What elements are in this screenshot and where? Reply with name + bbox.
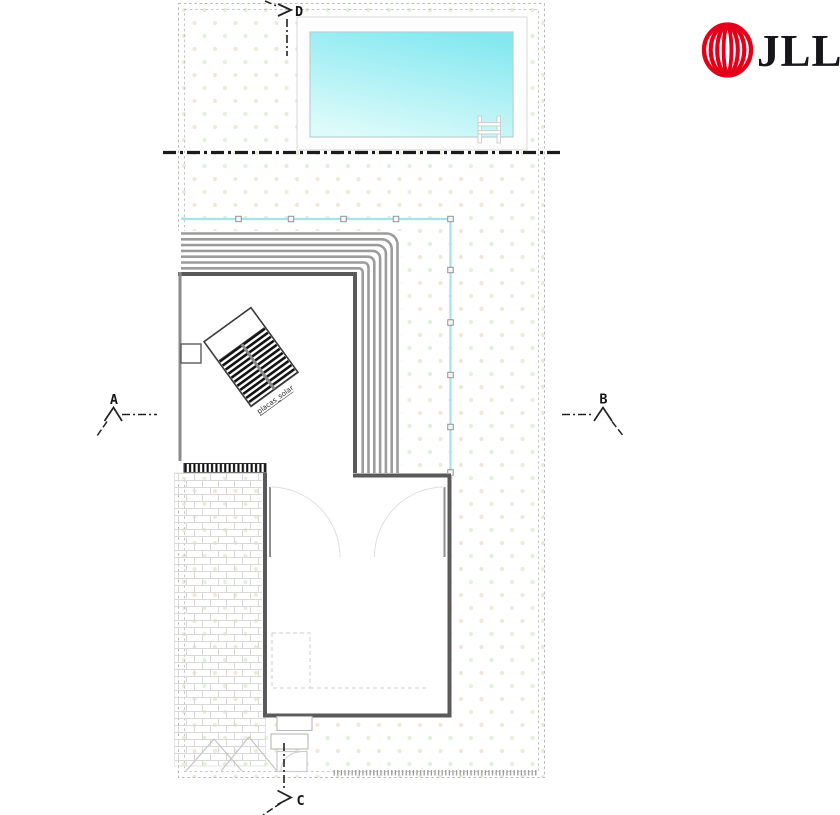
section-label-a: A — [110, 392, 118, 408]
lower-room — [262, 473, 452, 717]
bottom-hatch-strip — [333, 770, 538, 777]
section-label-d: D — [295, 4, 303, 20]
site-plan-page: D — [0, 0, 840, 815]
swimming-pool — [310, 32, 513, 137]
brick-patio — [175, 473, 266, 766]
pool-area — [297, 17, 527, 150]
floor-plan-drawing: D — [0, 0, 840, 815]
jll-logo: JLL — [704, 25, 840, 77]
louver-grate — [184, 464, 266, 473]
section-label-b: B — [599, 392, 607, 408]
jll-logo-text: JLL — [757, 26, 840, 76]
lower-room-floor — [262, 473, 452, 717]
wall-box — [181, 344, 201, 363]
section-label-c: C — [297, 793, 305, 809]
